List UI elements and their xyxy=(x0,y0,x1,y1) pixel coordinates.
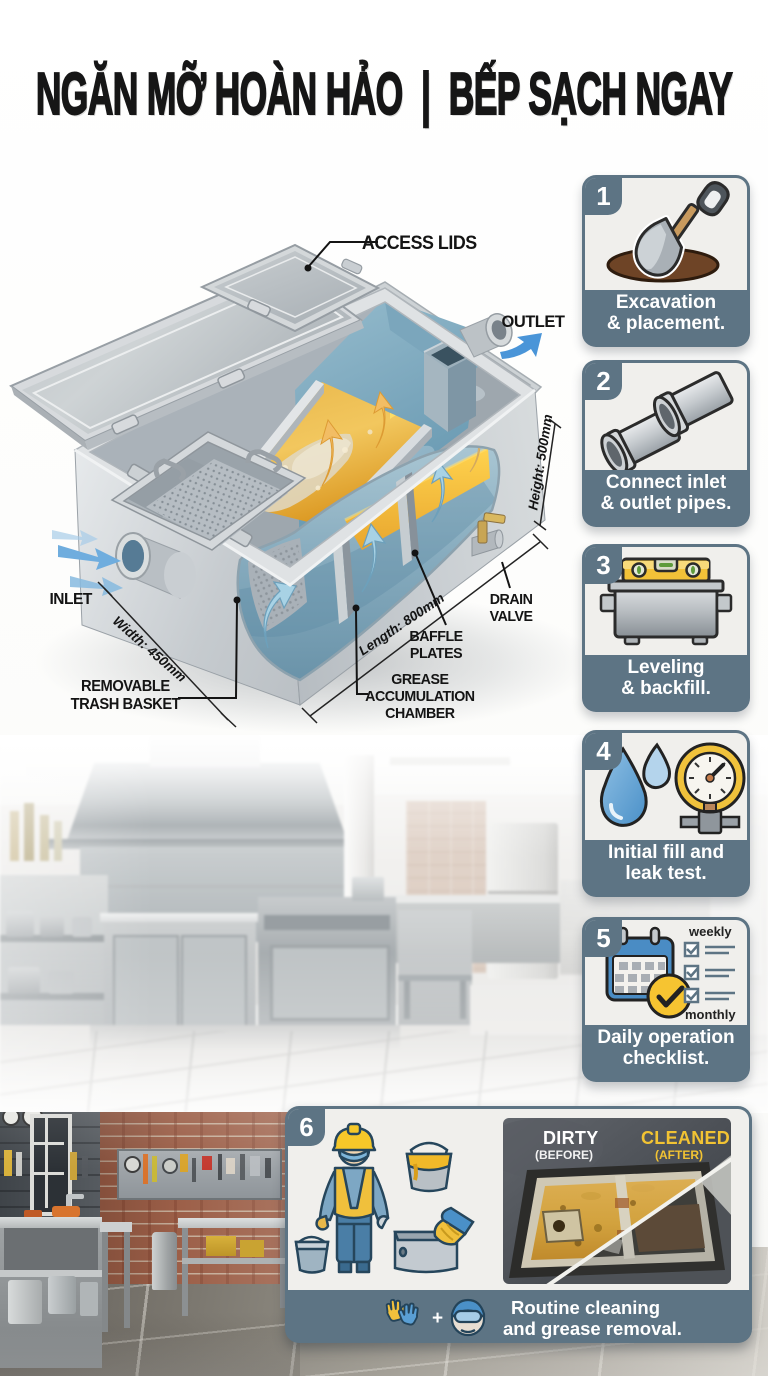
svg-text:INLET: INLET xyxy=(49,591,92,608)
svg-text:GREASE: GREASE xyxy=(391,672,449,688)
svg-text:DIRTY: DIRTY xyxy=(543,1128,599,1148)
svg-text:VALVE: VALVE xyxy=(490,609,534,625)
svg-text:DRAIN: DRAIN xyxy=(490,592,533,608)
svg-text:ACCUMULATION: ACCUMULATION xyxy=(365,689,474,705)
svg-text:+: + xyxy=(432,1308,443,1329)
svg-text:(BEFORE): (BEFORE) xyxy=(535,1148,593,1162)
svg-text:TRASH BASKET: TRASH BASKET xyxy=(71,696,182,713)
svg-text:weekly: weekly xyxy=(688,924,732,939)
svg-text:monthly: monthly xyxy=(685,1007,736,1022)
svg-text:OUTLET: OUTLET xyxy=(501,312,565,331)
svg-text:REMOVABLE: REMOVABLE xyxy=(81,678,170,695)
svg-text:BAFFLE: BAFFLE xyxy=(409,629,463,645)
svg-text:(AFTER): (AFTER) xyxy=(655,1148,703,1162)
svg-text:PLATES: PLATES xyxy=(410,646,463,662)
svg-text:CHAMBER: CHAMBER xyxy=(385,706,455,722)
svg-text:CLEANED: CLEANED xyxy=(641,1128,730,1148)
svg-text:ACCESS LIDS: ACCESS LIDS xyxy=(362,231,477,253)
